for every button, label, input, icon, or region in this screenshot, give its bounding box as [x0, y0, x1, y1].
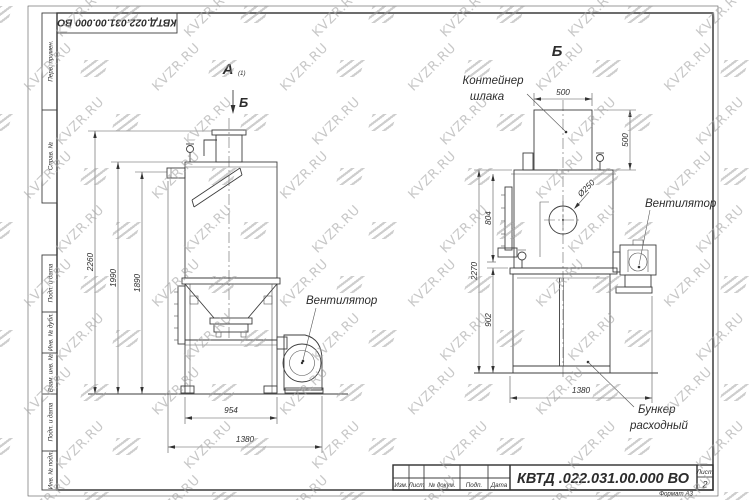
hopper-and-frame — [181, 284, 277, 393]
slag-container-label-1: Контейнер — [463, 75, 525, 87]
title-block: Изм. Лист № докум. Подп. Дата КВТД .022.… — [393, 465, 714, 498]
drawing-sheet: Перв. примен. Справ. № Подп. и дата Инв.… — [0, 0, 750, 500]
format-note: Формат А3 — [659, 491, 693, 498]
dim-total-height: 2260 — [86, 252, 95, 272]
dim-container-width: 500 — [556, 88, 570, 97]
margin-field-vzam-inv: Взам. инв. № — [48, 354, 55, 393]
title-col-dokum: № докум. — [428, 482, 455, 489]
margin-field-podp-data-2: Подп. и дата — [48, 402, 55, 441]
valve-icon-b — [596, 153, 604, 170]
sheet-label: Лист — [696, 469, 714, 476]
slag-container-label-2: шлака — [470, 91, 504, 103]
view-a-label-note: (1) — [238, 70, 246, 77]
dim-total-width: 1380 — [236, 435, 255, 444]
top-designation-stamp: КВТД.022.031.00.000 ВО — [57, 13, 177, 33]
valve-icon — [186, 144, 194, 162]
dim-body-width: 954 — [224, 406, 238, 415]
view-a-direction-label: Б — [239, 95, 248, 110]
margin-field-sprav-n: Справ. № — [48, 142, 55, 170]
hopper-cabinet — [513, 274, 610, 373]
fan-label-view-b: Вентилятор — [645, 198, 717, 210]
view-a: А (1) Б — [86, 61, 378, 453]
dim-upper-height: 804 — [484, 211, 493, 225]
dim-inlet-diameter: Ø250 — [575, 178, 597, 200]
title-col-izm: Изм. — [394, 482, 407, 489]
margin-field-inv-podl: Инв. № подл. — [48, 451, 55, 489]
view-a-label: А — [222, 61, 234, 78]
dim-inlet-height: 1890 — [133, 273, 142, 292]
margin-field-perv-primen: Перв. примен. — [48, 40, 55, 81]
view-b-label: Б — [552, 43, 563, 60]
machine-body-front — [498, 170, 617, 274]
sheet-frame — [28, 6, 718, 496]
fan-label-view-a: Вентилятор — [306, 295, 378, 307]
title-col-data: Дата — [490, 482, 508, 489]
fan-rear-view — [613, 240, 656, 293]
machine-body — [167, 162, 280, 344]
hopper-label-1: Бункер — [638, 404, 676, 416]
sheet-number: 2 — [701, 480, 707, 490]
margin-field-podp-data-1: Подп. и дата — [48, 263, 55, 302]
engineering-drawing: Перв. примен. Справ. № Подп. и дата Инв.… — [0, 0, 750, 500]
fan-side-view — [277, 335, 323, 393]
dim-body-height: 1990 — [109, 268, 118, 287]
dim-container-height: 500 — [621, 133, 630, 147]
drawing-designation: КВТД .022.031.00.000 ВО — [517, 471, 690, 487]
dim-total-height-b: 2270 — [470, 261, 479, 281]
hopper-label-2: расходный — [629, 420, 688, 432]
view-b: Б Контейнер шлака 500 — [463, 43, 717, 432]
dim-lower-height: 902 — [484, 313, 493, 327]
exhaust-stack — [204, 130, 246, 162]
margin-field-labels: Перв. примен. Справ. № Подп. и дата Инв.… — [48, 40, 55, 489]
title-col-list: Лист — [408, 482, 425, 489]
dim-width-b: 1380 — [572, 386, 591, 395]
title-col-podp: Подп. — [466, 482, 482, 489]
container-dimensions: 500 500 — [534, 88, 636, 170]
margin-field-inv-dubl: Инв. № дубл. — [48, 313, 55, 351]
slag-container — [523, 110, 592, 170]
top-designation-text: КВТД.022.031.00.000 ВО — [57, 17, 176, 28]
dimensions-view-a: 2260 1990 1890 954 1380 — [86, 131, 322, 453]
